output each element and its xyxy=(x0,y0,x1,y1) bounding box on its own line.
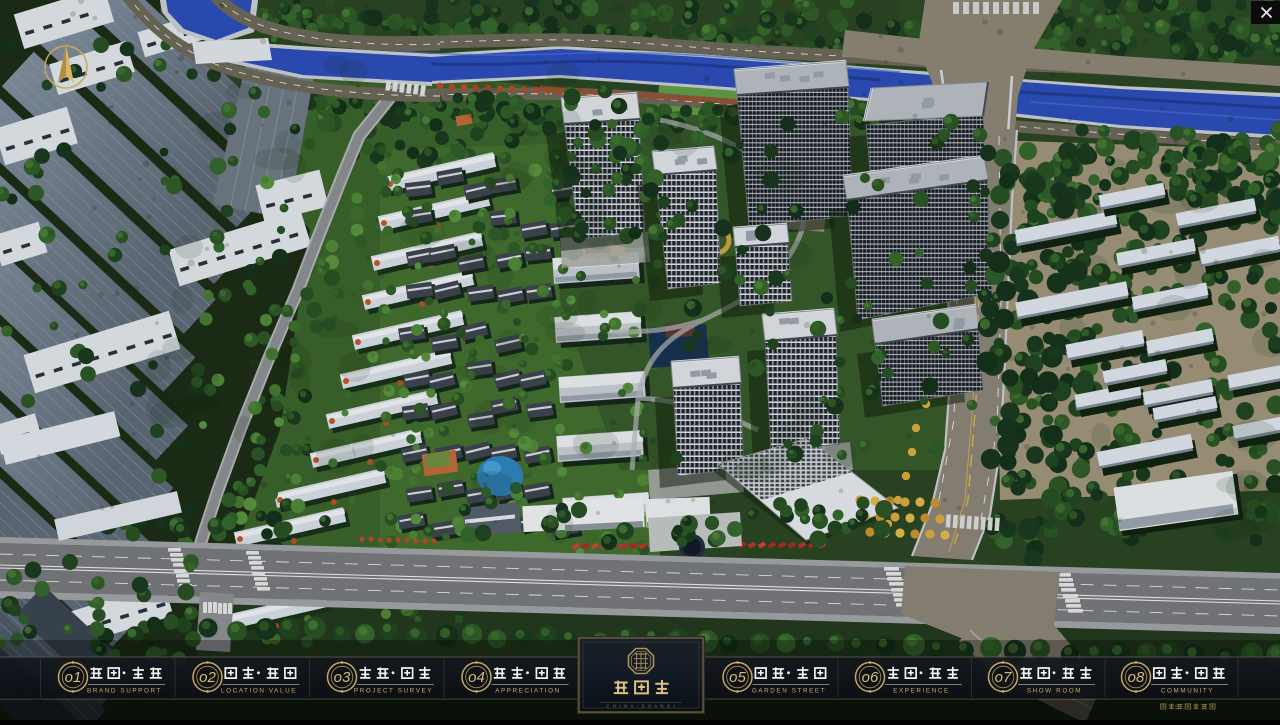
svg-text:o3: o3 xyxy=(334,669,351,686)
svg-text:o5: o5 xyxy=(729,669,746,686)
svg-text:o8: o8 xyxy=(1128,669,1145,686)
svg-text:o1: o1 xyxy=(65,669,82,686)
svg-text:LOCATION VALUE: LOCATION VALUE xyxy=(221,688,297,695)
svg-text:o2: o2 xyxy=(199,669,216,686)
svg-text:o4: o4 xyxy=(468,669,485,686)
svg-text:SHOW ROOM: SHOW ROOM xyxy=(1027,688,1082,695)
svg-text:C H I N A · S H A N X I: C H I N A · S H A N X I xyxy=(606,704,676,709)
svg-text:COMMUNITY: COMMUNITY xyxy=(1161,688,1214,695)
svg-text:o6: o6 xyxy=(862,669,879,686)
svg-text:o7: o7 xyxy=(995,669,1012,686)
svg-text:EXPERIENCE: EXPERIENCE xyxy=(893,688,950,695)
svg-text:BRAND SUPPORT: BRAND SUPPORT xyxy=(87,688,162,695)
svg-text:APPRECIATION: APPRECIATION xyxy=(495,688,561,695)
svg-text:PROJECT SURVEY: PROJECT SURVEY xyxy=(354,688,433,695)
svg-text:GARDEN STREET: GARDEN STREET xyxy=(752,688,826,695)
